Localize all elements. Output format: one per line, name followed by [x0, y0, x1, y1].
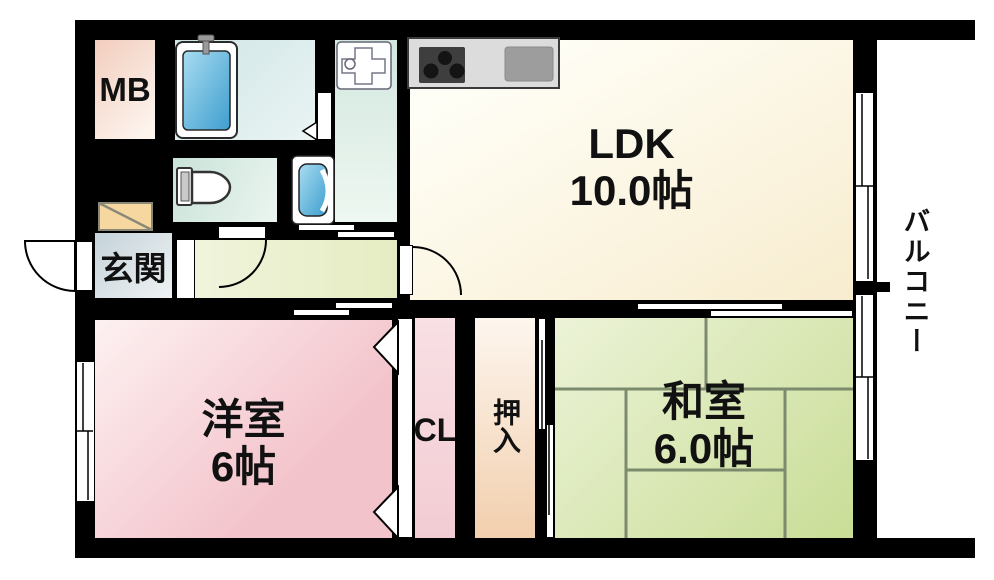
oshiire-sliding-door	[538, 318, 546, 430]
washroom-sliding-door	[337, 231, 395, 238]
yoshitsu-area: 6帖	[95, 443, 392, 490]
shoe-cabinet	[98, 202, 153, 231]
toilet-door-leaf	[218, 226, 266, 239]
hallway-yoshitsu-sliding-door	[293, 309, 350, 316]
ldk-washitsu-sliding-door	[637, 303, 783, 310]
yoshitsu-name: 洋室	[95, 396, 392, 443]
ldk-name: LDK	[410, 120, 853, 167]
front-door-leaf	[76, 241, 93, 291]
bathroom-door-leaf	[317, 92, 332, 140]
oshiire-sliding-door	[546, 424, 554, 538]
balcony-top-wall	[877, 20, 975, 40]
mb-label: MB	[99, 71, 150, 109]
floorplan: MB 玄関	[0, 0, 994, 580]
closet-label: CL	[406, 412, 464, 448]
yoshitsu-label-block: 洋室 6帖	[95, 396, 392, 490]
balcony-label: バルコニー	[886, 192, 944, 372]
room-toilet	[173, 158, 277, 222]
balcony-window-upper	[855, 92, 874, 282]
oshiire-label: 押入	[475, 378, 535, 474]
room-washroom	[335, 40, 397, 222]
genkan-label: 玄関	[101, 242, 167, 290]
hallway-yoshitsu-sliding-door	[335, 302, 393, 309]
front-door-swing	[25, 241, 75, 291]
washitsu-label-block: 和室 6.0帖	[555, 378, 853, 472]
yoshitsu-window	[76, 361, 95, 502]
room-bathroom	[175, 40, 315, 140]
washroom-sliding-door	[298, 224, 355, 231]
room-hallway	[195, 240, 397, 298]
ldk-washitsu-sliding-door	[710, 310, 853, 317]
genkan-hallway-opening	[177, 240, 194, 298]
washitsu-name: 和室	[555, 378, 853, 425]
ldk-door-leaf	[399, 245, 413, 295]
balcony-bottom-wall	[877, 538, 975, 558]
washitsu-area: 6.0帖	[555, 425, 853, 472]
ldk-label-block: LDK 10.0帖	[410, 120, 853, 214]
balcony-window-lower	[855, 294, 874, 461]
ldk-area: 10.0帖	[410, 167, 853, 214]
room-genkan: 玄関	[95, 233, 172, 298]
room-mb: MB	[95, 40, 155, 139]
